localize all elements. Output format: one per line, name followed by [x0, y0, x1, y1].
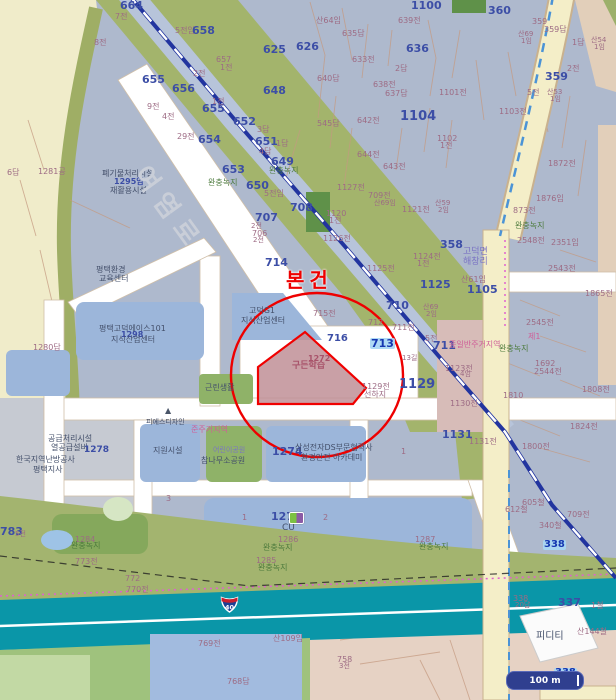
map-label: 2전 — [253, 237, 264, 244]
map-label: 640답 — [317, 75, 340, 83]
map-label: 1전 — [440, 142, 452, 150]
map-label: 653 — [222, 164, 245, 175]
map-label: 5전 — [527, 89, 539, 97]
map-label: 4임 — [460, 371, 471, 378]
map-label: 652 — [233, 116, 256, 127]
map-label: 2 — [323, 514, 328, 522]
map-label: 2전 — [193, 70, 205, 78]
map-label: 해창리 — [463, 258, 488, 267]
map-label: 1280답 — [33, 344, 61, 352]
map-label: 2351임 — [551, 239, 579, 247]
map-label: 1808전 — [582, 386, 610, 394]
map-label: 360 — [488, 5, 511, 16]
map-label: 1전 — [329, 217, 341, 225]
map-label: 삼성전자DS부문협력사 — [295, 444, 372, 452]
map-label: 제1 — [528, 333, 540, 341]
label-layer: 6647전6571전8전5전임6586256266552전6566486551전… — [0, 0, 616, 700]
map-label: 1101전 — [439, 89, 467, 97]
map-label: 완충녹지 — [499, 345, 528, 353]
map-label: 20답 — [515, 602, 530, 609]
map-label: 1129 — [399, 378, 435, 391]
map-label: 평택환경 — [96, 266, 125, 274]
map-label: 664 — [120, 0, 143, 11]
map-label: 6답 — [7, 169, 19, 177]
map-label: 1872전 — [548, 160, 576, 168]
map-label: 1전 — [220, 64, 232, 72]
map-label: 1126전 — [323, 235, 351, 243]
map-label: 구든학습 — [292, 362, 325, 371]
map-label: 완충녹지 — [419, 543, 448, 551]
map-label: 359 — [545, 71, 568, 82]
map-label: 654 — [198, 134, 221, 145]
map-label: 완충녹지 — [71, 542, 100, 550]
map-label: 712 — [368, 319, 383, 327]
map-label: 1125전 — [367, 265, 395, 273]
map-label: 1865전 — [585, 290, 613, 298]
map-label: 772 — [125, 575, 140, 583]
map-label: 1답 — [276, 140, 288, 148]
map-label: 완충녹지 — [258, 564, 287, 572]
map-label: 642전 — [357, 117, 380, 125]
map-label: 3 — [166, 495, 171, 503]
map-label: 1824전 — [570, 423, 598, 431]
map-label: 637답 — [385, 90, 408, 98]
map-label: 1810 — [503, 392, 523, 400]
map-label: 1임 — [521, 38, 532, 45]
map-label: 피디티 — [536, 632, 564, 642]
map-label: 1125 — [420, 279, 451, 290]
map-label: 714 — [265, 257, 288, 268]
map-label: 평택지사 — [33, 466, 62, 474]
map-label: 4전 — [162, 113, 174, 121]
map-label: 1876임 — [536, 195, 564, 203]
map-label: 열공급설비 — [51, 444, 88, 452]
map-label: 639전 — [398, 17, 421, 25]
map-label: 1전 — [212, 98, 224, 106]
map-label: 644전 — [357, 151, 380, 159]
map-label: 2543전 — [548, 265, 576, 273]
map-label: 2답 — [395, 65, 407, 73]
map-label: 635답 — [342, 30, 365, 38]
map-label: 근린생활 — [205, 384, 234, 392]
map-label: 359답 — [544, 26, 567, 34]
map-label: 1답 — [572, 39, 584, 47]
map-label: 피에스디자인 — [146, 419, 185, 426]
map-label: 1105 — [467, 284, 498, 295]
map-viewport[interactable]: 40 6647전6571전8전5전임6586256266552전65664865… — [0, 0, 616, 700]
map-label: 873전 — [513, 207, 536, 215]
map-label: 4답 — [259, 148, 271, 156]
map-label: 711전 — [392, 324, 415, 332]
map-label: 633전 — [352, 56, 375, 64]
map-label: 768답 — [227, 678, 250, 686]
map-label: 참나무소공원 — [201, 457, 245, 465]
map-label: 1 — [242, 514, 247, 522]
map-label: 산69임 — [374, 200, 396, 207]
map-label: 1 — [401, 448, 406, 456]
map-label: 완충녹지 — [263, 544, 292, 552]
map-label: 1철 — [591, 602, 603, 610]
map-label: 658 — [192, 25, 215, 36]
map-label: 5전임 — [264, 190, 284, 198]
map-label: 545답 — [317, 120, 340, 128]
map-label: 8전 — [94, 39, 106, 47]
map-label: 773전 — [75, 558, 98, 566]
map-label: 1임 — [550, 96, 561, 103]
map-label: 358 — [440, 239, 463, 250]
map-label: 651 — [255, 136, 278, 147]
map-label: 산109임 — [273, 635, 303, 643]
map-label: 5전 — [15, 531, 26, 538]
map-label: 지식산업센터 — [111, 336, 155, 344]
map-label: 612철 — [505, 506, 528, 514]
map-label: 공급처리시설 — [48, 435, 92, 443]
scale-bar: 100 m — [506, 671, 584, 690]
map-label: 648 — [263, 85, 286, 96]
map-label: 2전 — [567, 65, 579, 73]
map-label: 625 — [263, 44, 286, 55]
map-label: 종일반주거지역 — [449, 341, 501, 349]
map-label: 2임 — [426, 311, 437, 318]
map-label: 13길 — [402, 355, 417, 362]
map-label: 338 — [543, 540, 566, 550]
map-label: 7전 — [115, 13, 127, 21]
map-label: 29전 — [177, 133, 195, 141]
map-label: 3전 — [339, 663, 350, 670]
map-label: 2544전 — [534, 368, 562, 376]
map-label: 고덕면 — [463, 248, 488, 257]
map-label: 어린이공원 — [213, 447, 245, 454]
cu-store-icon — [289, 512, 304, 524]
map-label: 716 — [327, 334, 348, 344]
map-label: 지식산업센터 — [241, 317, 285, 325]
map-label: 636 — [406, 43, 429, 54]
map-label: 770전 — [126, 586, 149, 594]
map-label: 1전 — [417, 260, 429, 268]
subject-label: 본건 — [286, 264, 333, 293]
map-label: 완충녹지 — [515, 222, 544, 230]
map-label: 708 — [290, 202, 313, 213]
map-label: 환경안전 아카데미 — [301, 454, 362, 462]
map-label: 655 — [142, 74, 165, 85]
map-label: 여염로 — [129, 162, 208, 257]
map-label: 2545전 — [526, 319, 554, 327]
map-label: 준주거지역 — [191, 426, 228, 434]
map-label: 산144철 — [577, 628, 607, 636]
map-label: 1800전 — [522, 443, 550, 451]
map-label: 337 — [558, 597, 581, 608]
map-label: 산64임 — [316, 17, 341, 25]
map-label: 1281공 — [38, 168, 66, 176]
map-label: 626 — [296, 41, 319, 52]
map-label: 1127전 — [337, 184, 365, 192]
map-label: 2548전 — [517, 237, 545, 245]
map-label: 1임 — [594, 44, 605, 51]
map-label: 709전 — [567, 511, 590, 519]
map-label: 고덕G1 — [249, 307, 275, 315]
map-label: 710 — [386, 300, 409, 311]
map-label: 713 — [370, 338, 395, 349]
map-label: 1121전 — [402, 206, 430, 214]
map-label: 한국지역난방공사 — [16, 456, 75, 464]
map-label: 지원시설 — [153, 447, 182, 455]
map-label: 선하지 — [364, 391, 386, 399]
map-label: 완충녹지 — [269, 167, 298, 175]
map-label: 교육센터 — [99, 275, 128, 283]
map-label: 769전 — [198, 640, 221, 648]
facility-marker-icon: ▲ — [165, 407, 171, 415]
map-label: 638전 — [373, 81, 396, 89]
map-label: 3답 — [257, 126, 269, 134]
map-label: 9전 — [147, 103, 159, 111]
map-label: 1278 — [84, 446, 109, 455]
map-label: 1103전 — [499, 108, 527, 116]
map-label: 715전 — [313, 310, 336, 318]
map-label: CU — [282, 524, 295, 533]
map-label: 1104 — [400, 110, 436, 123]
map-label: 340철 — [539, 522, 562, 530]
map-label: 2임 — [438, 207, 449, 214]
map-label: 656 — [172, 83, 195, 94]
map-label: 643전 — [383, 163, 406, 171]
map-label: 1100 — [411, 0, 442, 11]
scale-bar-label: 100 m — [529, 676, 560, 686]
map-label: 완충녹지 — [208, 179, 237, 187]
map-label: 1131전 — [469, 438, 497, 446]
map-label: 1130전 — [450, 400, 478, 408]
